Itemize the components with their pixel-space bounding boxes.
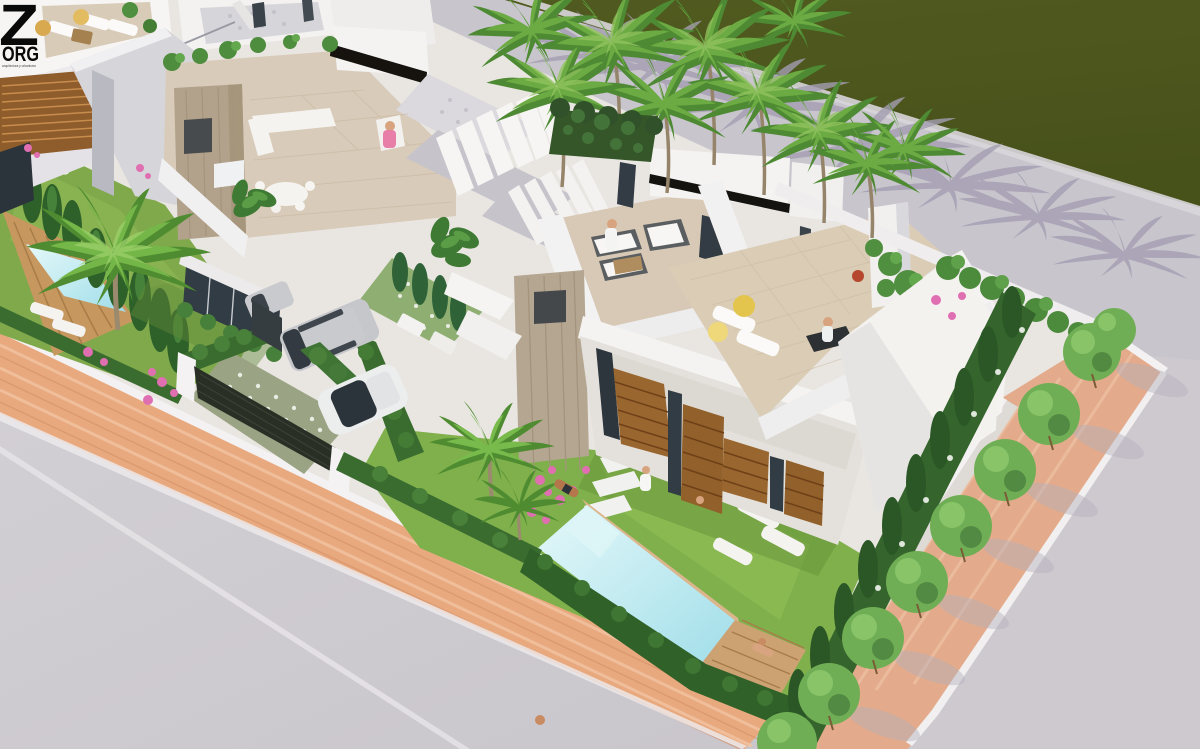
svg-text:arquitectura y urbanismo: arquitectura y urbanismo [2, 63, 37, 68]
